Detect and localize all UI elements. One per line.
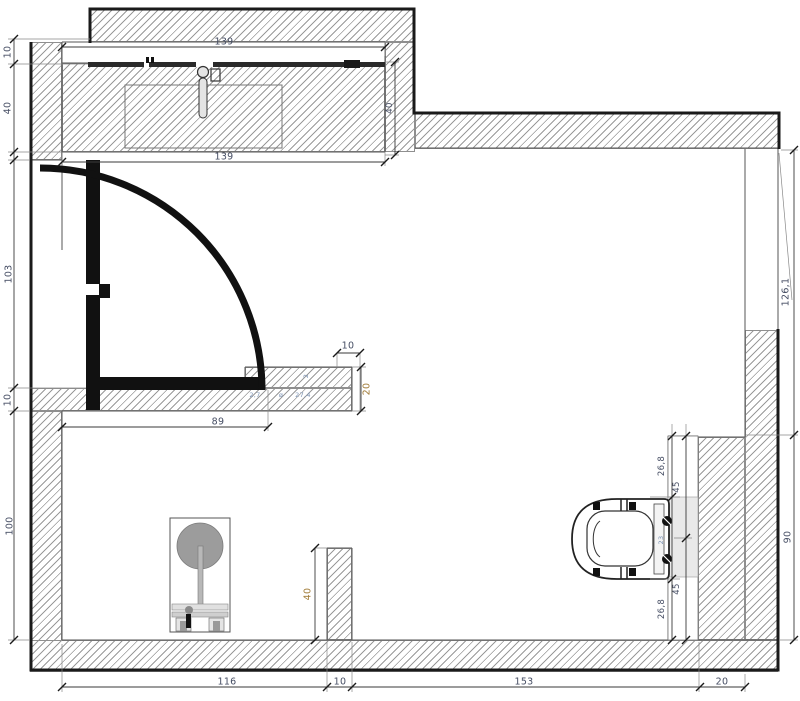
dim-wc-bolt-span: 23 bbox=[657, 536, 665, 545]
counter-front-edge bbox=[88, 57, 385, 68]
floor-plan: 139 139 10 40 40 103 10 100 89 10 20 2 2… bbox=[0, 0, 800, 701]
faucet-valve-icon bbox=[211, 69, 220, 81]
washbasin-pedestal bbox=[170, 518, 230, 632]
dim-counter-width-bottom: 139 bbox=[214, 152, 233, 163]
door-stop-bar bbox=[86, 377, 260, 390]
dim-bottom-4: 20 bbox=[716, 677, 729, 688]
dim-wc-top-offset: 26,8 bbox=[657, 456, 667, 476]
dim-counter-depth-left: 40 bbox=[3, 102, 14, 115]
dim-partition-tiny-4: 27,4 bbox=[295, 391, 311, 399]
dim-wc-bottom-offset: 26,8 bbox=[657, 599, 667, 619]
dim-stub-length: 40 bbox=[303, 588, 314, 601]
door-handle bbox=[99, 284, 110, 298]
dim-wc-bottom-half: 45 bbox=[672, 583, 682, 594]
dim-partition-depth: 20 bbox=[362, 383, 373, 396]
door-swing-arc bbox=[40, 168, 262, 390]
dim-right-upper-height: 126,1 bbox=[781, 278, 792, 307]
plan-linework bbox=[0, 0, 800, 701]
counter-faucet bbox=[198, 67, 221, 119]
dim-bottom-3: 153 bbox=[514, 677, 533, 688]
dim-room-left-height: 100 bbox=[5, 516, 16, 535]
dim-partition-tiny-2: 2,7 bbox=[249, 391, 260, 399]
dim-jamb-thickness: 10 bbox=[3, 394, 14, 407]
dim-wc-top-half: 45 bbox=[672, 481, 682, 492]
dim-counter-depth-right: 40 bbox=[385, 102, 395, 113]
faucet-spout-icon bbox=[199, 78, 207, 118]
dim-bottom-1: 116 bbox=[217, 677, 236, 688]
dim-door-opening: 103 bbox=[4, 264, 15, 283]
dim-bottom-2: 10 bbox=[334, 677, 347, 688]
faucet-base-icon bbox=[198, 67, 209, 78]
dim-partition-tiny-1: 2 bbox=[302, 374, 310, 378]
dim-counter-width-top: 139 bbox=[214, 37, 233, 48]
door-leaf-gap bbox=[86, 284, 100, 295]
dim-partition-segment: 10 bbox=[342, 341, 355, 352]
dim-right-lower-height: 90 bbox=[783, 531, 794, 544]
door bbox=[40, 160, 262, 410]
washbasin-stand bbox=[198, 546, 203, 608]
dim-shelf-depth: 10 bbox=[3, 46, 14, 59]
dim-door-clearance: 89 bbox=[212, 417, 225, 428]
dim-partition-tiny-3: ø bbox=[279, 391, 283, 399]
